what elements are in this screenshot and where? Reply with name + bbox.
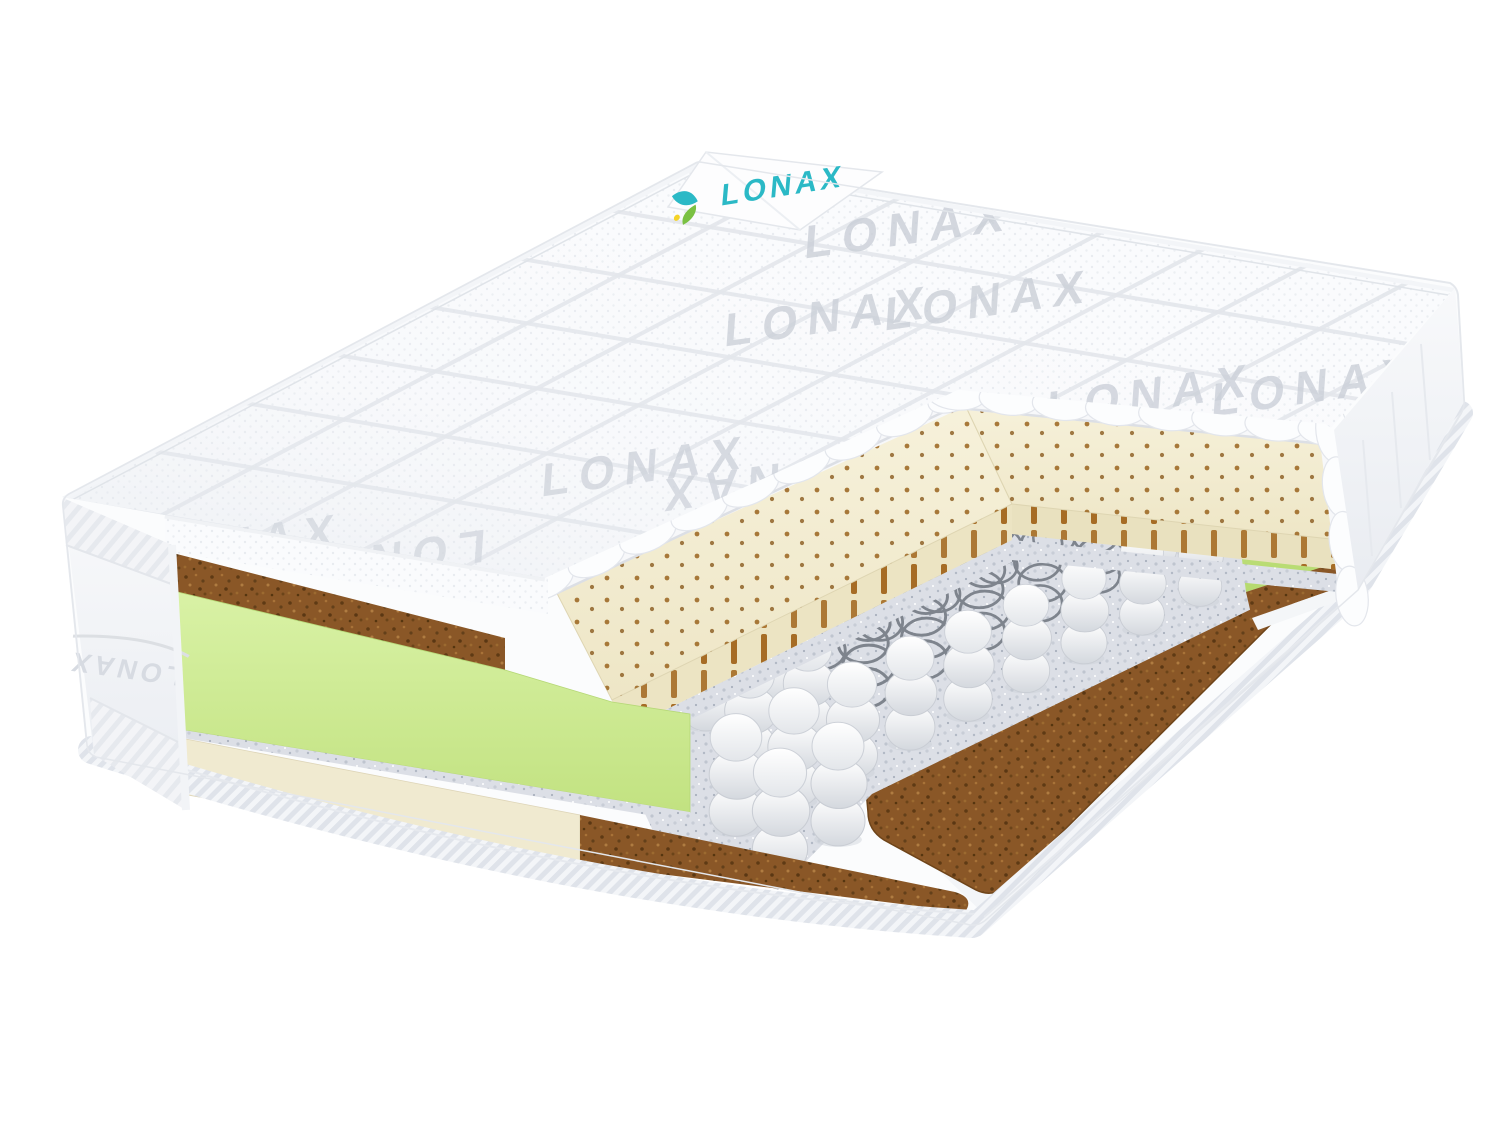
- pocket-spring: [811, 722, 867, 847]
- mattress-cutaway-svg: LONAX LONAXLONAXLONAXLONAXLONAXLONAXLONA…: [0, 0, 1500, 1125]
- pocket-spring: [1002, 584, 1051, 693]
- pocket-spring: [885, 636, 937, 751]
- mattress-product-render: LONAX LONAXLONAXLONAXLONAXLONAXLONAXLONA…: [0, 0, 1500, 1125]
- pocket-spring: [1061, 558, 1109, 664]
- pocket-spring: [944, 610, 994, 722]
